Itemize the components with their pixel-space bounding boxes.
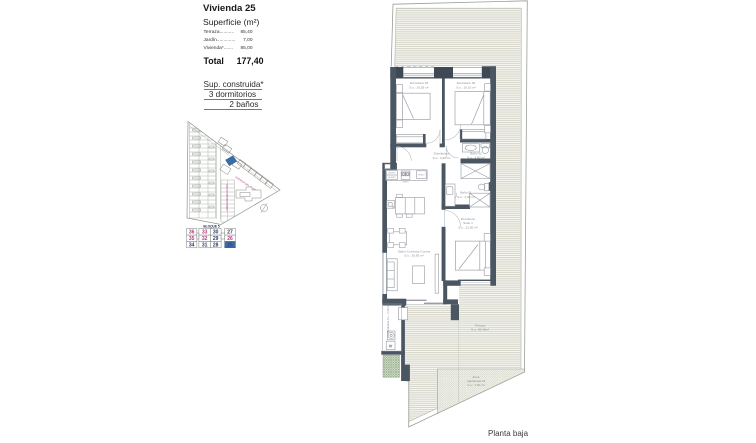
svg-text:S.u.: 20,95 m²: S.u.: 20,95 m²	[404, 254, 423, 258]
svg-text:27: 27	[227, 230, 233, 236]
svg-text:S.u.: 82,40m²: S.u.: 82,40m²	[471, 327, 489, 331]
svg-text:S.u.: 12,00 m²: S.u.: 12,00 m²	[458, 225, 477, 229]
svg-text:S.u.: 10,10 m²: S.u.: 10,10 m²	[456, 85, 475, 89]
svg-text:CALLE LOS BALCONES: CALLE LOS BALCONES	[225, 184, 228, 211]
svg-text:Planta baja: Planta baja	[488, 429, 529, 438]
svg-text:LV: LV	[389, 345, 392, 348]
svg-text:S.u.: 3,60 m²: S.u.: 3,60 m²	[467, 155, 485, 159]
svg-text:26: 26	[227, 236, 233, 242]
svg-text:S.u.: 4,00 m²: S.u.: 4,00 m²	[457, 195, 475, 199]
svg-text:HORNO: HORNO	[388, 177, 396, 179]
svg-text:VITRO: VITRO	[402, 181, 409, 183]
svg-text:35: 35	[189, 236, 195, 242]
svg-text:BLOQUE 5: BLOQUE 5	[203, 225, 220, 229]
svg-text:S.u.: 7,00 m²: S.u.: 7,00 m²	[467, 383, 484, 387]
svg-text:S.u.: 10,05 m²: S.u.: 10,05 m²	[409, 85, 428, 89]
svg-text:Tendedero S.u.: 2,30 m²: Tendedero S.u.: 2,30 m²	[386, 304, 390, 333]
svg-text:36: 36	[189, 230, 195, 236]
svg-text:29: 29	[213, 236, 219, 242]
svg-text:30: 30	[213, 230, 219, 236]
svg-text:MICRO: MICRO	[389, 173, 396, 175]
svg-text:28: 28	[213, 242, 219, 248]
svg-text:32: 32	[202, 236, 208, 242]
svg-text:33: 33	[202, 230, 208, 236]
svg-text:31: 31	[202, 242, 208, 248]
svg-text:FRIGO: FRIGO	[418, 175, 425, 177]
svg-text:S.u.: 3,90 m²: S.u.: 3,90 m²	[433, 156, 451, 160]
svg-text:25: 25	[227, 242, 233, 248]
svg-text:34: 34	[189, 242, 195, 248]
